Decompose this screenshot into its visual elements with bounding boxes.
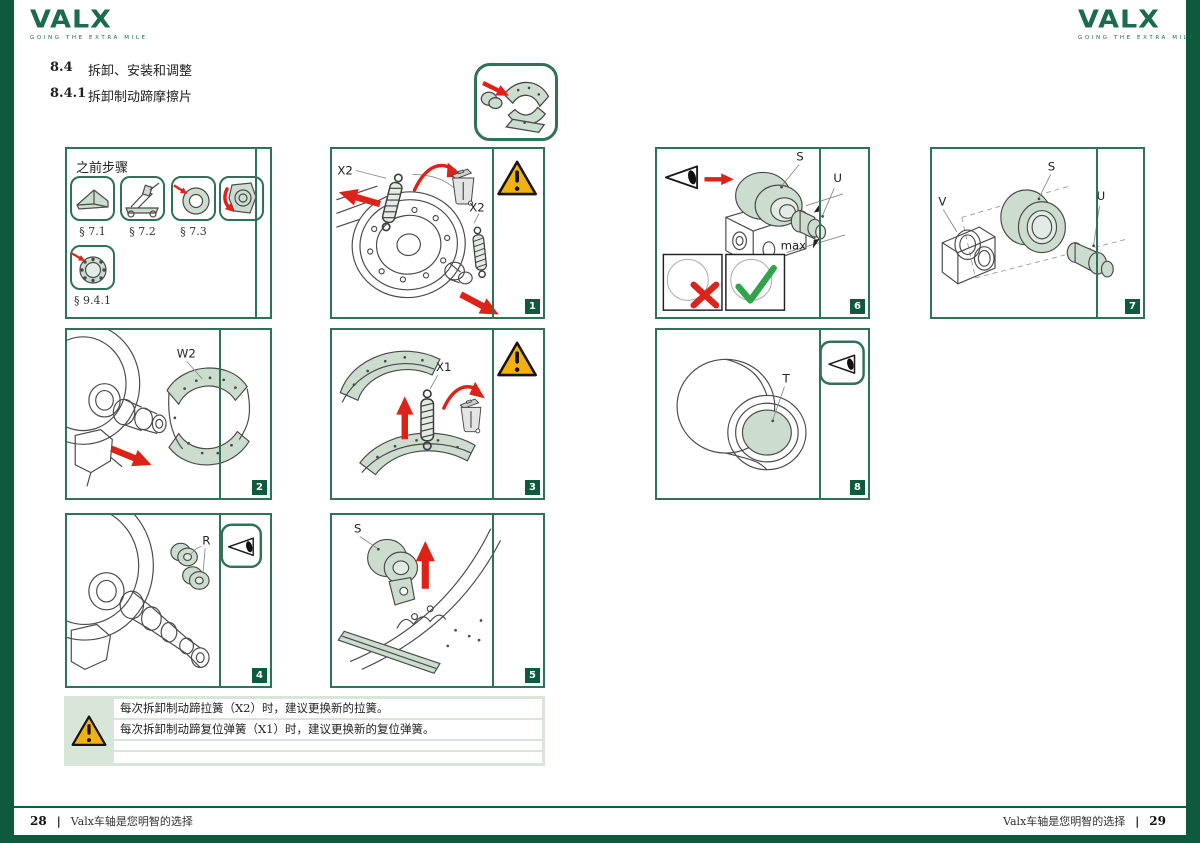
step-release-brake-icon bbox=[219, 176, 264, 221]
red-arrow-icon bbox=[336, 184, 382, 212]
subsection-number: 8.4.1 bbox=[50, 86, 86, 101]
brake-shoe-illustration bbox=[477, 66, 555, 138]
caution-text-rows: 每次拆卸制动蹄拉簧（X2）时，建议更换新的拉簧。 每次拆卸制动蹄复位弹簧（X1）… bbox=[114, 699, 542, 763]
footer-tagline: Valx车轴是您明智的选择 bbox=[71, 815, 193, 828]
step-number-badge: 1 bbox=[525, 299, 540, 314]
bracket-label: V bbox=[938, 195, 946, 209]
panel-separator bbox=[492, 149, 494, 317]
caution-line: 每次拆卸制动蹄复位弹簧（X1）时，建议更换新的复位弹簧。 bbox=[114, 720, 542, 739]
step-ref: § 7.1 bbox=[70, 225, 115, 238]
roller-label: S bbox=[1048, 159, 1055, 173]
page-number: 28 bbox=[30, 814, 47, 828]
step-ref: § 7.2 bbox=[120, 225, 165, 238]
panel-step-1: X2 X2 1 bbox=[330, 147, 545, 319]
red-arrow-icon bbox=[704, 173, 733, 185]
red-arrow-icon bbox=[416, 541, 435, 589]
caution-box: 每次拆卸制动蹄拉簧（X2）时，建议更换新的拉簧。 每次拆卸制动蹄复位弹簧（X1）… bbox=[64, 696, 545, 766]
caution-line bbox=[114, 741, 542, 750]
step-wheel-chock-icon bbox=[70, 176, 115, 221]
panel-step-4: R 4 bbox=[65, 513, 272, 688]
right-edge-bar bbox=[1186, 0, 1200, 843]
warning-triangle-icon bbox=[498, 162, 535, 194]
remove-brake-shoes-illustration: W2 bbox=[67, 330, 270, 498]
valx-tagline: GOING THE EXTRA MILE bbox=[30, 35, 140, 41]
roller-parts-exploded-illustration: V S U bbox=[932, 149, 1143, 317]
panel-separator bbox=[492, 515, 494, 686]
step-number-badge: 2 bbox=[252, 480, 267, 495]
inspect-rollers-illustration: R bbox=[67, 515, 270, 686]
panel-separator bbox=[255, 149, 257, 317]
spring-label: X1 bbox=[436, 360, 451, 374]
caution-line: 每次拆卸制动蹄拉簧（X2）时，建议更换新的拉簧。 bbox=[114, 699, 542, 718]
panel-step-6: S U max 6 bbox=[655, 147, 870, 319]
step-number-badge: 5 bbox=[525, 668, 540, 683]
step-ref: § 9.4.1 bbox=[70, 294, 115, 307]
remove-retraction-springs-illustration: X2 X2 bbox=[332, 149, 543, 317]
footer-left: 28|Valx车轴是您明智的选择 bbox=[30, 813, 193, 829]
shoes-label: W2 bbox=[177, 346, 196, 360]
bottom-edge-bar bbox=[0, 835, 1200, 843]
panel-separator bbox=[219, 515, 221, 686]
step-number-badge: 8 bbox=[850, 480, 865, 495]
red-arrow-icon bbox=[457, 287, 503, 317]
footer-divider: | bbox=[57, 815, 61, 828]
valx-logo: VALX GOING THE EXTRA MILE bbox=[1078, 8, 1188, 41]
bore-label: T bbox=[782, 372, 791, 386]
section-title: 拆卸、安装和调整 bbox=[88, 60, 192, 79]
left-edge-bar bbox=[0, 0, 14, 843]
step-number-badge: 7 bbox=[1125, 299, 1140, 314]
step-trolley-jack-icon bbox=[120, 176, 165, 221]
panel-separator bbox=[492, 330, 494, 498]
previous-steps-panel: 之前步骤 bbox=[65, 147, 272, 319]
spring-label: X2 bbox=[469, 201, 484, 215]
rollers-label: R bbox=[202, 533, 210, 547]
panel-separator bbox=[819, 330, 821, 498]
valx-wordmark: VALX bbox=[1078, 8, 1188, 32]
retraction-spring-icon bbox=[379, 173, 405, 232]
valx-wordmark: VALX bbox=[30, 8, 140, 32]
roller-label: S bbox=[354, 522, 361, 536]
panel-step-7: V S U 7 bbox=[930, 147, 1145, 319]
remove-roller-illustration: S bbox=[332, 515, 543, 686]
panel-step-8: T 8 bbox=[655, 328, 870, 500]
panel-separator bbox=[219, 330, 221, 498]
pin-label: U bbox=[833, 171, 842, 185]
panel-step-2: W2 2 bbox=[65, 328, 272, 500]
warning-triangle-icon bbox=[498, 343, 535, 375]
manual-page-spread: VALX GOING THE EXTRA MILE VALX GOING THE… bbox=[0, 0, 1200, 843]
remove-return-spring-illustration: X1 bbox=[332, 330, 543, 498]
spring-label: X2 bbox=[337, 163, 352, 177]
footer-right: Valx车轴是您明智的选择|29 bbox=[1003, 813, 1166, 829]
previous-steps-title: 之前步骤 bbox=[76, 157, 128, 176]
step-remove-hub-icon bbox=[70, 245, 115, 290]
panel-step-3: X1 3 bbox=[330, 328, 545, 500]
brake-shoe-topic-icon bbox=[474, 63, 558, 141]
page-number: 29 bbox=[1149, 814, 1166, 828]
footer-divider: | bbox=[1135, 815, 1139, 828]
valx-logo: VALX GOING THE EXTRA MILE bbox=[30, 8, 140, 41]
roller-label: S bbox=[796, 150, 803, 164]
red-arrow-icon bbox=[108, 441, 155, 473]
inspect-roller-illustration: S U max bbox=[657, 149, 868, 317]
step-ref: § 7.3 bbox=[171, 225, 216, 238]
footer-rule bbox=[14, 806, 1186, 808]
retraction-spring-icon bbox=[472, 227, 488, 278]
max-label: max bbox=[781, 239, 807, 253]
step-remove-wheel-icon bbox=[171, 176, 216, 221]
panel-separator bbox=[819, 149, 821, 317]
warning-triangle-icon bbox=[67, 699, 111, 763]
section-number: 8.4 bbox=[50, 60, 73, 75]
step-number-badge: 6 bbox=[850, 299, 865, 314]
panel-step-5: S 5 bbox=[330, 513, 545, 688]
step-number-badge: 4 bbox=[252, 668, 267, 683]
valx-tagline: GOING THE EXTRA MILE bbox=[1078, 35, 1188, 41]
step-number-badge: 3 bbox=[525, 480, 540, 495]
subsection-title: 拆卸制动蹄摩擦片 bbox=[88, 86, 192, 105]
caution-line bbox=[114, 752, 542, 763]
eye-inspection-icon bbox=[666, 166, 698, 188]
inspect-roller-bore-illustration: T bbox=[657, 330, 868, 498]
panel-separator bbox=[1096, 149, 1098, 317]
trash-bin-icon bbox=[460, 399, 481, 433]
red-arrow-icon bbox=[396, 396, 413, 439]
footer-tagline: Valx车轴是您明智的选择 bbox=[1003, 815, 1125, 828]
